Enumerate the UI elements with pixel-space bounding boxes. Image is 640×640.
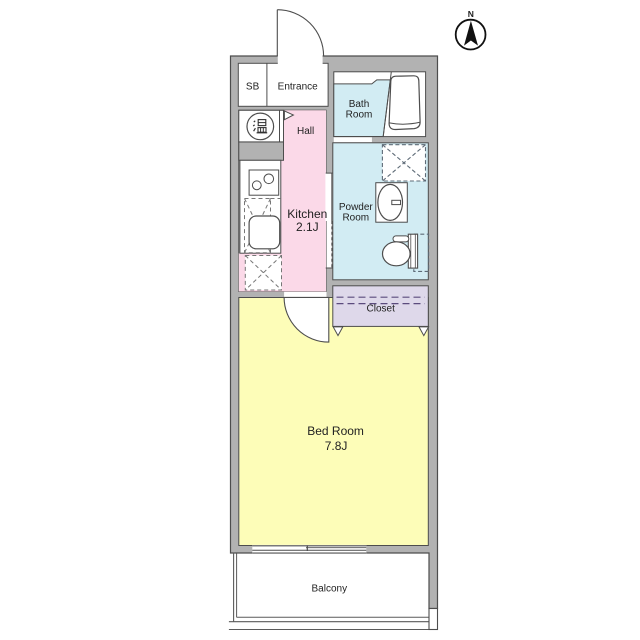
svg-text:Hall: Hall [297, 126, 314, 137]
svg-text:N: N [468, 9, 474, 19]
svg-text:Powder: Powder [339, 202, 374, 213]
svg-text:Bed Room: Bed Room [307, 424, 364, 438]
svg-text:Kitchen: Kitchen [287, 207, 327, 221]
svg-text:7.8J: 7.8J [325, 439, 348, 453]
svg-text:Balcony: Balcony [312, 584, 348, 595]
svg-text:2.1J: 2.1J [296, 220, 319, 234]
svg-text:Bath: Bath [349, 99, 370, 110]
svg-text:Entrance: Entrance [278, 82, 318, 93]
svg-text:Room: Room [346, 110, 373, 121]
svg-text:SB: SB [246, 82, 260, 93]
svg-text:Room: Room [342, 213, 369, 224]
svg-text:Closet: Closet [367, 303, 396, 314]
